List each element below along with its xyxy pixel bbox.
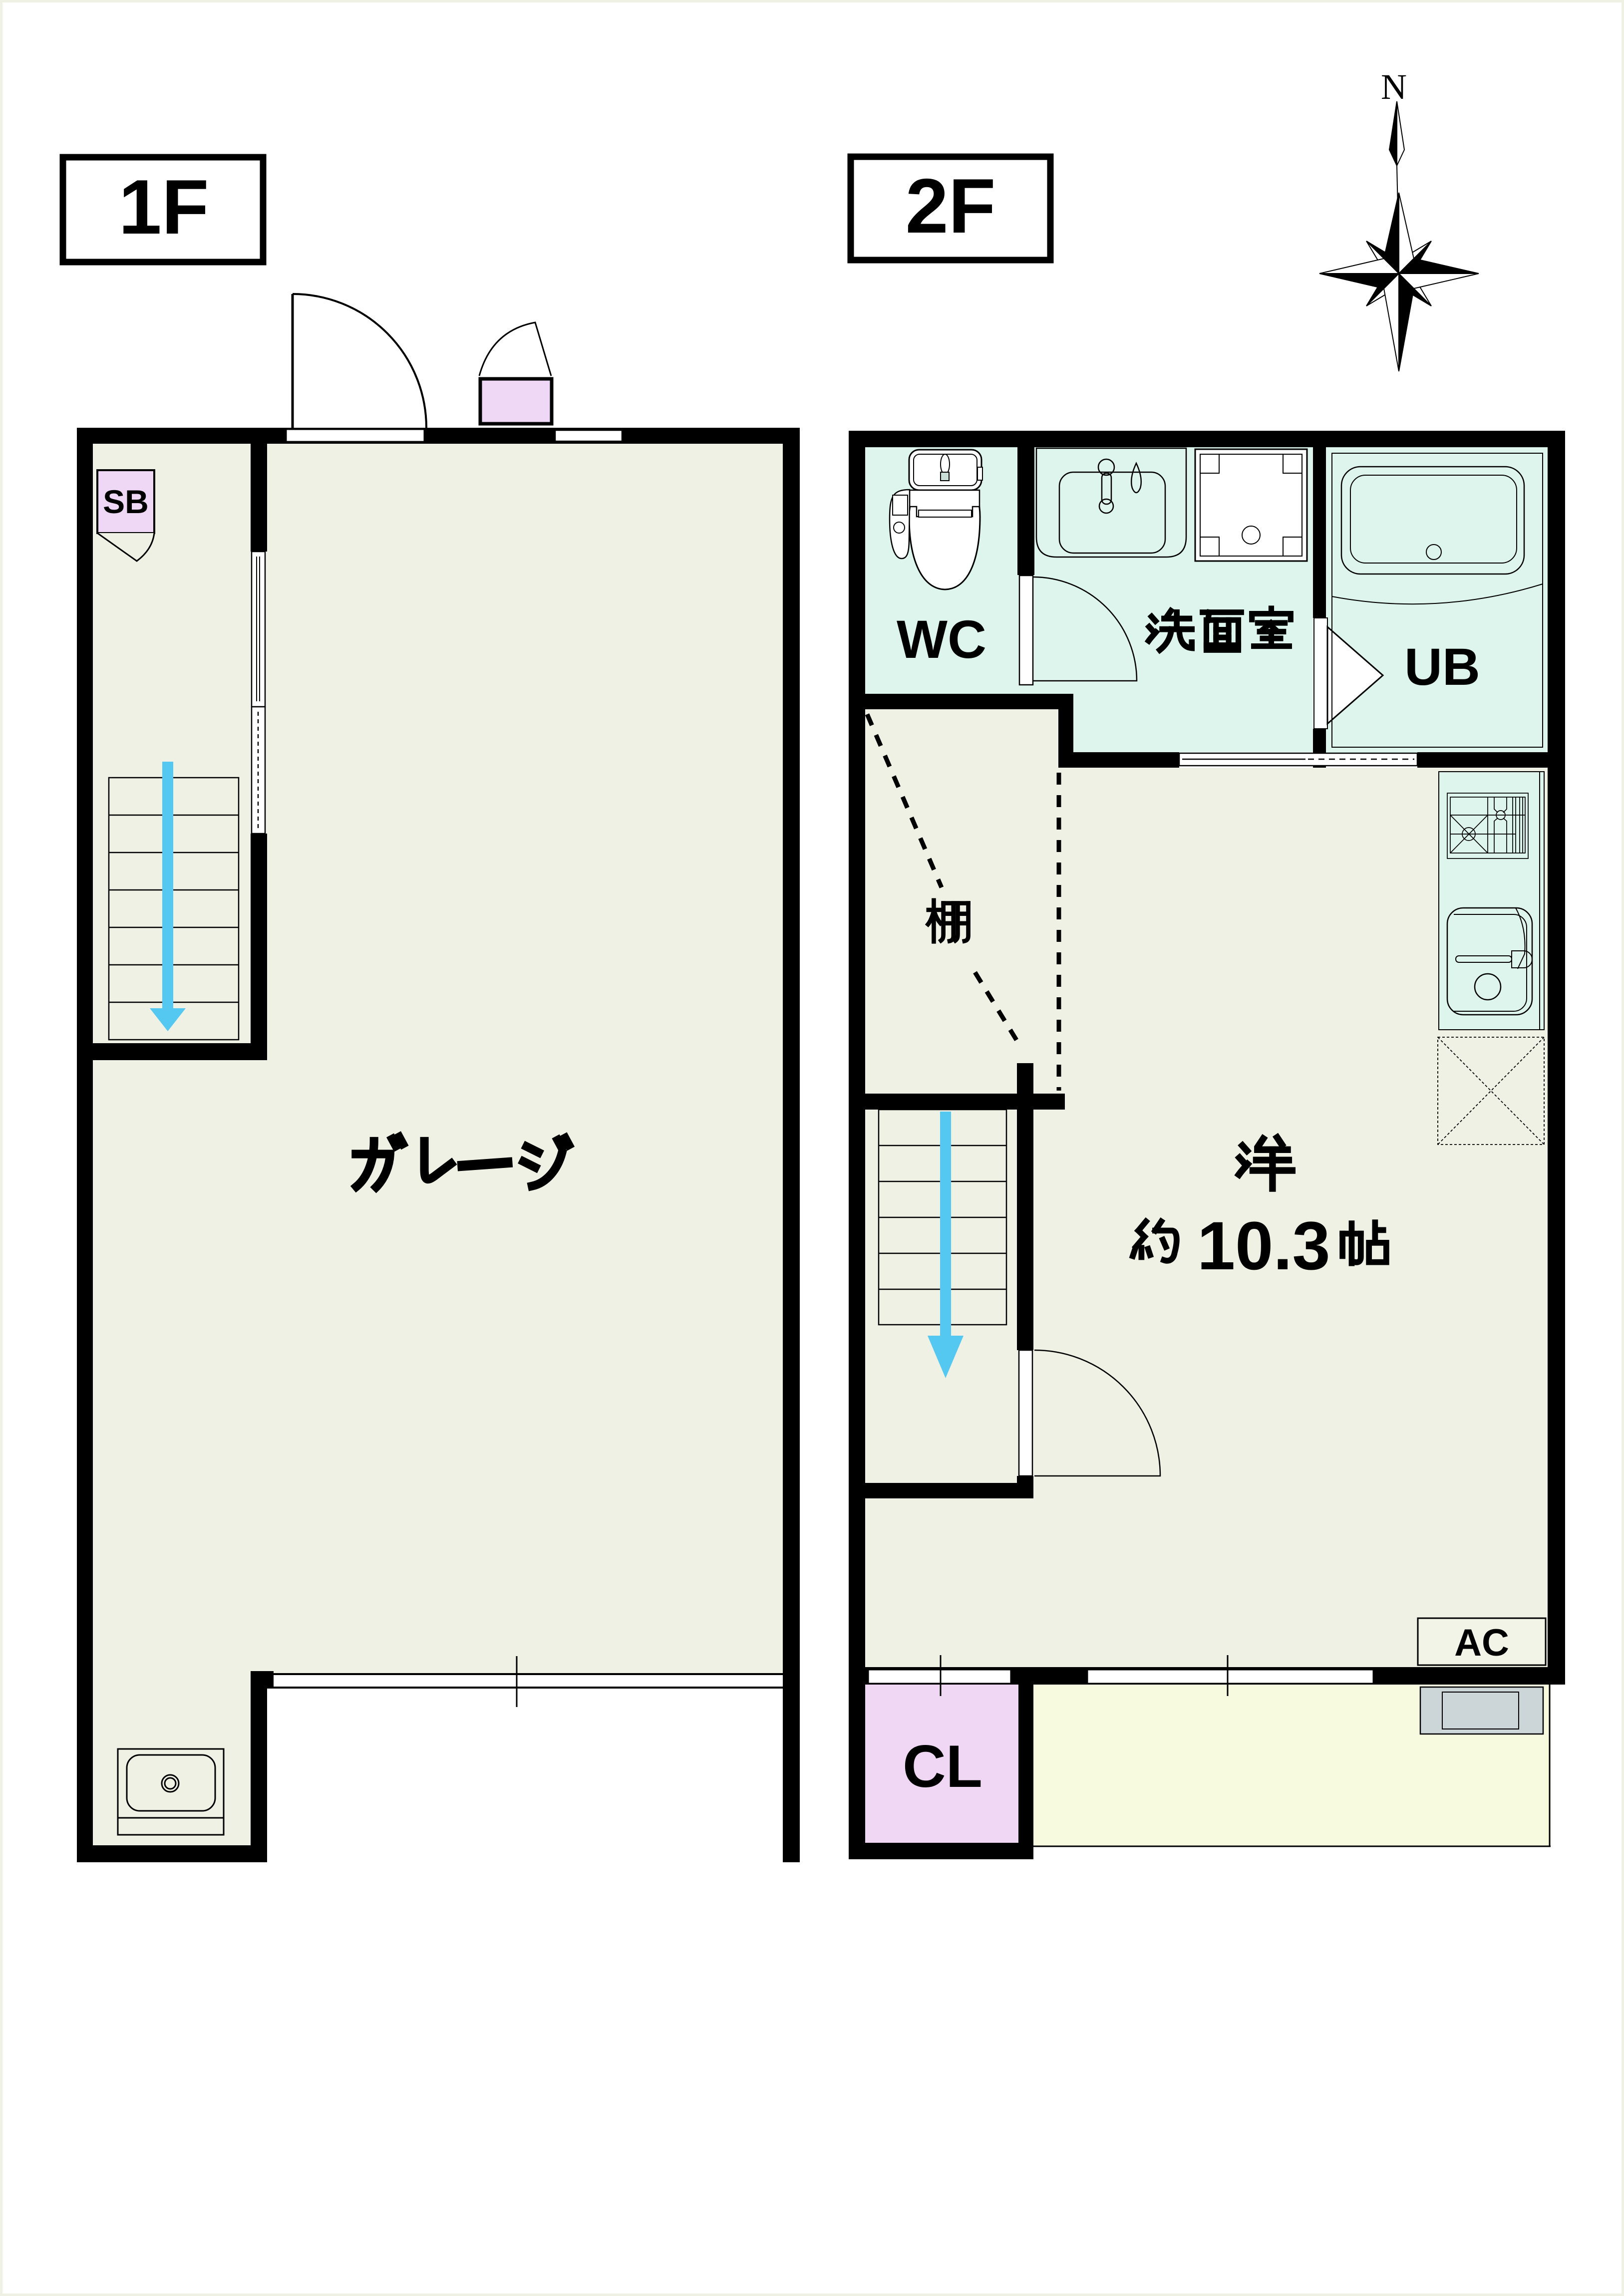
svg-text:1F: 1F <box>119 164 209 250</box>
svg-text:AC: AC <box>1454 1622 1509 1664</box>
svg-text:N: N <box>1381 67 1407 107</box>
svg-text:UB: UB <box>1404 638 1480 696</box>
svg-text:10.3: 10.3 <box>1197 1208 1330 1284</box>
svg-text:WC: WC <box>897 609 986 669</box>
svg-text:CL: CL <box>903 1733 982 1800</box>
svg-text:2F: 2F <box>906 163 996 249</box>
svg-text:SB: SB <box>103 483 149 520</box>
